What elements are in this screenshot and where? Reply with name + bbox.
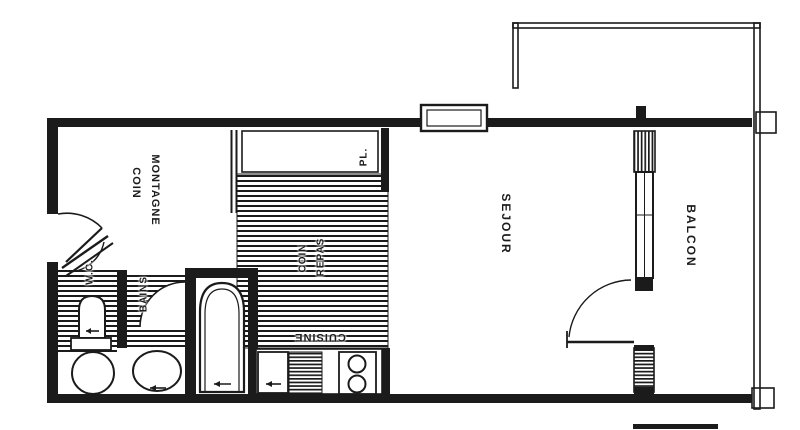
left-wall-upper — [47, 118, 58, 214]
railing-top-bracket — [756, 112, 776, 133]
room-label-placard: PL. — [359, 148, 370, 167]
kitchen-drainer — [289, 352, 322, 393]
room-label-cuisine: CUISINE — [294, 331, 346, 343]
bottom-wall — [47, 394, 752, 403]
balcony-door — [567, 280, 634, 348]
floor-plan: COIN MONTAGNE PL. COIN REPAS CUISINE SEJ… — [0, 0, 800, 430]
balcony-lower-edge-line — [633, 424, 718, 429]
balcony-bay-window — [567, 106, 655, 394]
coin-montagne-partition-wall — [232, 130, 237, 213]
top-wall — [47, 118, 752, 127]
below-door-panel — [634, 345, 654, 394]
railing-bottom-bracket — [752, 388, 774, 408]
room-label-coin-montagne-word1: COIN — [130, 167, 142, 199]
kitchen-counter — [256, 349, 382, 394]
wc-washbasin — [72, 352, 114, 394]
left-wall-lower — [47, 262, 58, 403]
bains-washbasin — [133, 351, 181, 391]
room-label-balcon: BALCON — [684, 204, 698, 267]
room-label-bains: BAINS — [139, 276, 150, 312]
room-label-coin-montagne-word2: MONTAGNE — [149, 154, 161, 225]
kitchen-sink — [258, 352, 288, 393]
floor-plan-drawing — [0, 0, 800, 430]
hall-hatched-zone — [237, 174, 388, 348]
bay-top-stub — [636, 106, 646, 122]
bathtub — [200, 283, 244, 392]
room-label-coin-repas-word1: COIN — [298, 244, 309, 273]
room-label-sejour: SEJOUR — [499, 193, 513, 254]
shutter-box — [634, 131, 655, 172]
room-label-wc: W.C. — [85, 259, 96, 285]
sejour-left-wall-stub — [381, 128, 389, 192]
door-hinge-block — [635, 279, 653, 291]
sliding-window — [636, 172, 653, 278]
room-label-coin-repas-word2: REPAS — [316, 238, 327, 277]
top-window — [421, 105, 487, 131]
stove — [339, 352, 376, 394]
